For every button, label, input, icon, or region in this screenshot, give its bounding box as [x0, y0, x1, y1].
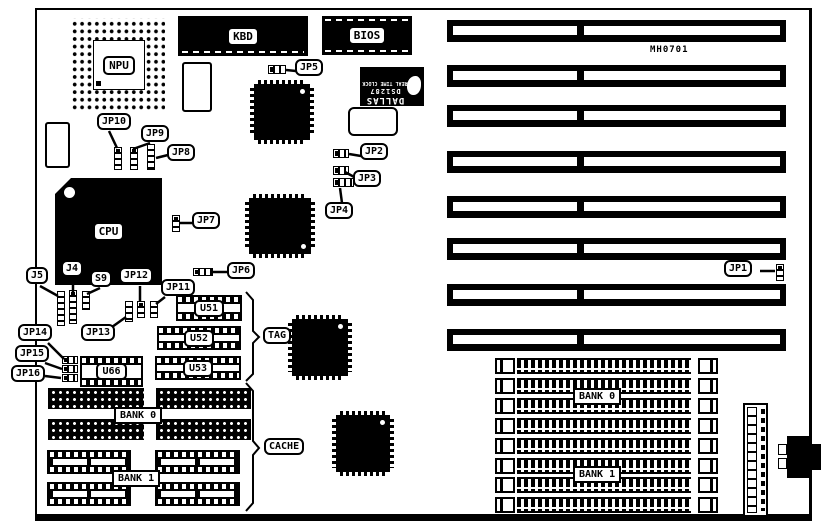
u66-label: U66 [96, 363, 126, 380]
label-s9: S9 [90, 270, 112, 287]
u52-label: U52 [184, 330, 214, 347]
jumper-jp13 [125, 301, 133, 322]
isa-slot-7 [447, 284, 786, 306]
label-jp9: JP9 [141, 125, 169, 142]
jumper-jp3 [333, 166, 349, 175]
bios-label: BIOS [348, 26, 387, 45]
jumper-jp9 [130, 147, 138, 170]
label-jp14: JP14 [18, 324, 52, 341]
jumper-jp15 [62, 365, 78, 373]
jumper-s9 [82, 291, 90, 310]
dram-dip-row [155, 450, 240, 474]
isa-slot-4 [447, 151, 786, 173]
label-tag: TAG [263, 327, 291, 344]
cpu-label: CPU [93, 222, 125, 241]
dallas-rtc-text: DALLAS DS1287 REAL TIME CLOCK [362, 68, 408, 105]
label-jp16: JP16 [11, 365, 45, 382]
keyboard-connector-bump [808, 444, 821, 470]
kbd-socket-dash [182, 51, 304, 53]
dram-sip-row [156, 419, 251, 440]
jumper-jp16 [62, 374, 78, 382]
power-pin-dashes [761, 409, 765, 511]
simm-bank1-label: BANK 1 [573, 466, 621, 483]
power-connector [743, 403, 768, 517]
keyboard-connector [787, 436, 809, 478]
dram-sip-row [156, 388, 251, 409]
jumper-jp5 [268, 65, 286, 74]
qfp-pin1-dot [338, 324, 343, 329]
simm-socket-8 [495, 497, 718, 513]
oscillator [348, 107, 398, 136]
isa-slot-6 [447, 238, 786, 260]
qfp-pin1-dot [300, 89, 305, 94]
label-jp11: JP11 [161, 279, 195, 296]
simm-socket-4 [495, 418, 718, 434]
u51-label: U51 [194, 300, 224, 317]
label-jp1: JP1 [724, 260, 752, 277]
qfp-pin1-dot [380, 420, 385, 425]
simm-socket-1 [495, 358, 718, 374]
socket-u52: U52 [157, 326, 241, 350]
npu-pin1-mark [96, 81, 101, 86]
qfp-pin1-dot [301, 244, 306, 249]
jumper-jp8 [147, 144, 155, 170]
jumper-j5 [57, 291, 65, 326]
keyboard-connector-pin [778, 458, 787, 469]
jumper-jp11 [150, 301, 158, 318]
tag-ram-chip [288, 315, 352, 380]
motherboard-diagram: NPU KBD BIOS DALLAS DS1287 REAL TIME CLO… [0, 0, 821, 527]
board-id-text: MH0701 [650, 45, 689, 55]
u53-label: U53 [183, 360, 213, 377]
bios-socket-dash-bottom [325, 50, 409, 52]
label-jp2: JP2 [360, 143, 388, 160]
npu-socket: NPU [70, 18, 165, 110]
label-jp10: JP10 [97, 113, 131, 130]
keyboard-connector-pin [778, 444, 787, 455]
label-jp12: JP12 [119, 267, 153, 284]
bios-socket-dash-top [325, 19, 409, 21]
power-pin-column [747, 407, 757, 513]
isa-slot-1 [447, 20, 786, 42]
dallas-desc: REAL TIME CLOCK [362, 80, 408, 86]
oscillator [182, 62, 212, 112]
jumper-jp7 [172, 215, 180, 232]
jumper-jp4 [333, 178, 354, 187]
socket-u53: U53 [155, 356, 241, 380]
label-jp6: JP6 [227, 262, 255, 279]
label-jp5: JP5 [295, 59, 323, 76]
isa-slot-8 [447, 329, 786, 351]
dallas-part: DS1287 [362, 86, 408, 95]
isa-slot-2 [447, 65, 786, 87]
label-jp3: JP3 [353, 170, 381, 187]
jumper-jp6 [193, 268, 213, 276]
kbd-chip: KBD [178, 16, 308, 56]
jumper-jp12 [137, 301, 145, 318]
jumper-jp1 [776, 264, 784, 281]
dram-bank0-label: BANK 0 [114, 407, 162, 424]
socket-u51: U51 [176, 295, 242, 321]
cpu-pin1-dot [64, 187, 75, 198]
label-j5: J5 [26, 267, 48, 284]
dallas-logo-icon [407, 76, 421, 95]
label-jp13: JP13 [81, 324, 115, 341]
dallas-brand: DALLAS [362, 95, 408, 105]
label-jp8: JP8 [167, 144, 195, 161]
jumper-j4 [69, 290, 77, 324]
dram-sip-row [48, 388, 144, 409]
label-jp15: JP15 [15, 345, 49, 362]
simm-bank0-label: BANK 0 [573, 388, 621, 405]
bios-chip: BIOS [322, 16, 412, 55]
cache-ram-chip [332, 411, 394, 476]
isa-slot-3 [447, 105, 786, 127]
oscillator [45, 122, 70, 168]
jumper-jp14 [62, 356, 78, 364]
dallas-rtc-chip: DALLAS DS1287 REAL TIME CLOCK [360, 67, 424, 106]
label-j4: J4 [61, 260, 83, 277]
isa-slot-5 [447, 196, 786, 218]
label-jp4: JP4 [325, 202, 353, 219]
jumper-jp10 [114, 147, 122, 170]
simm-socket-5 [495, 438, 718, 454]
label-jp7: JP7 [192, 212, 220, 229]
npu-label: NPU [103, 56, 135, 75]
dram-dip-row [155, 482, 240, 506]
label-cache: CACHE [264, 438, 304, 455]
socket-u66: U66 [80, 356, 143, 387]
dram-bank1-label: BANK 1 [112, 470, 160, 487]
qfp-chip [250, 80, 314, 144]
jumper-jp2 [333, 149, 349, 158]
qfp-chip [245, 194, 315, 258]
kbd-label: KBD [227, 27, 259, 46]
